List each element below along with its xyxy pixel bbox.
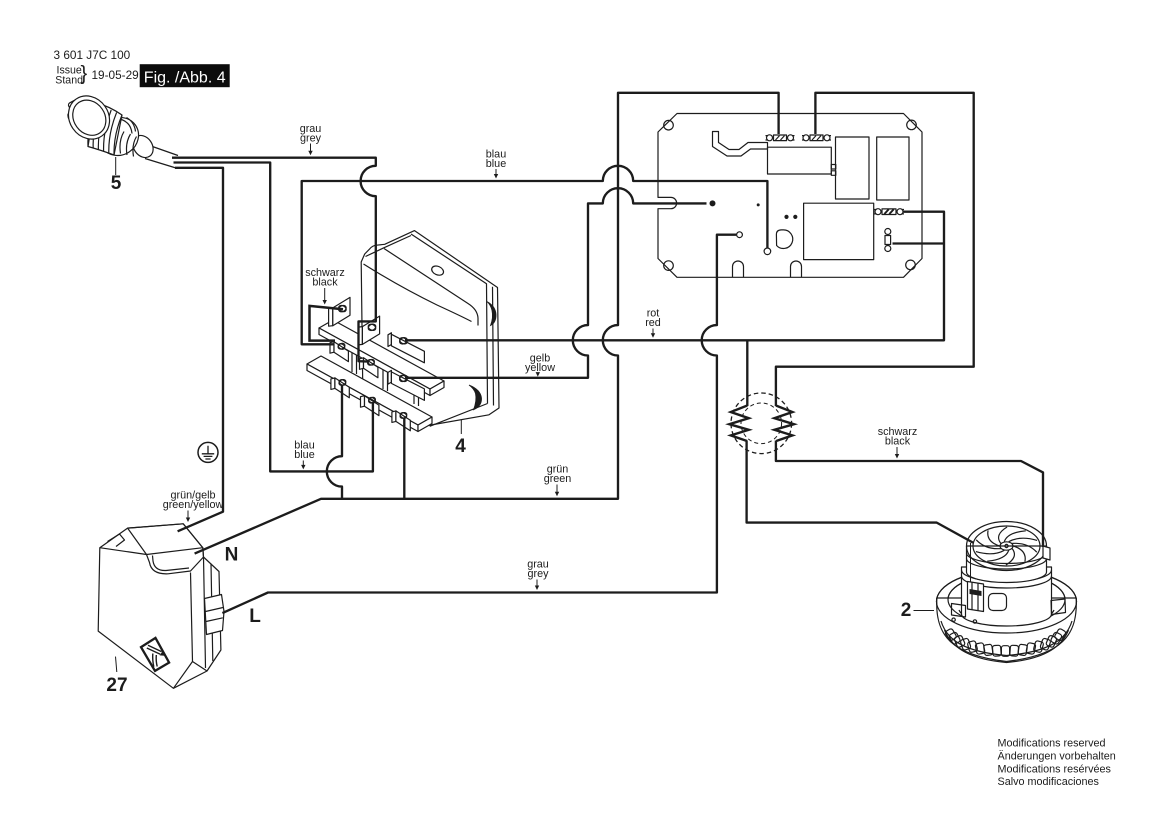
svg-text:black: black <box>312 277 338 289</box>
svg-text:Stand: Stand <box>55 75 83 87</box>
svg-text:red: red <box>645 317 661 329</box>
svg-text:black: black <box>885 436 911 448</box>
svg-text:yellow: yellow <box>525 362 555 374</box>
svg-text:green: green <box>544 473 572 485</box>
svg-text:5: 5 <box>111 173 122 194</box>
svg-text:grey: grey <box>300 132 322 144</box>
svg-text:N: N <box>225 545 239 566</box>
svg-text:Modifications reserved: Modifications reserved <box>998 738 1106 750</box>
svg-text:L: L <box>249 606 261 627</box>
svg-text:3 601 J7C 100: 3 601 J7C 100 <box>54 48 131 62</box>
svg-text:}: } <box>81 63 88 85</box>
svg-text:19-05-29: 19-05-29 <box>92 68 139 82</box>
svg-text:Modifications resérvées: Modifications resérvées <box>998 763 1112 775</box>
svg-text:2: 2 <box>901 600 912 621</box>
svg-text:Änderungen vorbehalten: Änderungen vorbehalten <box>998 750 1116 762</box>
svg-text:4: 4 <box>455 436 466 457</box>
svg-text:Fig. /Abb. 4: Fig. /Abb. 4 <box>144 69 226 86</box>
svg-text:Salvo modificaciones: Salvo modificaciones <box>998 776 1100 788</box>
svg-text:blue: blue <box>486 158 506 170</box>
svg-text:27: 27 <box>106 675 127 696</box>
svg-text:green/yellow: green/yellow <box>163 499 224 511</box>
svg-text:blue: blue <box>294 449 314 461</box>
svg-text:grey: grey <box>527 568 549 580</box>
